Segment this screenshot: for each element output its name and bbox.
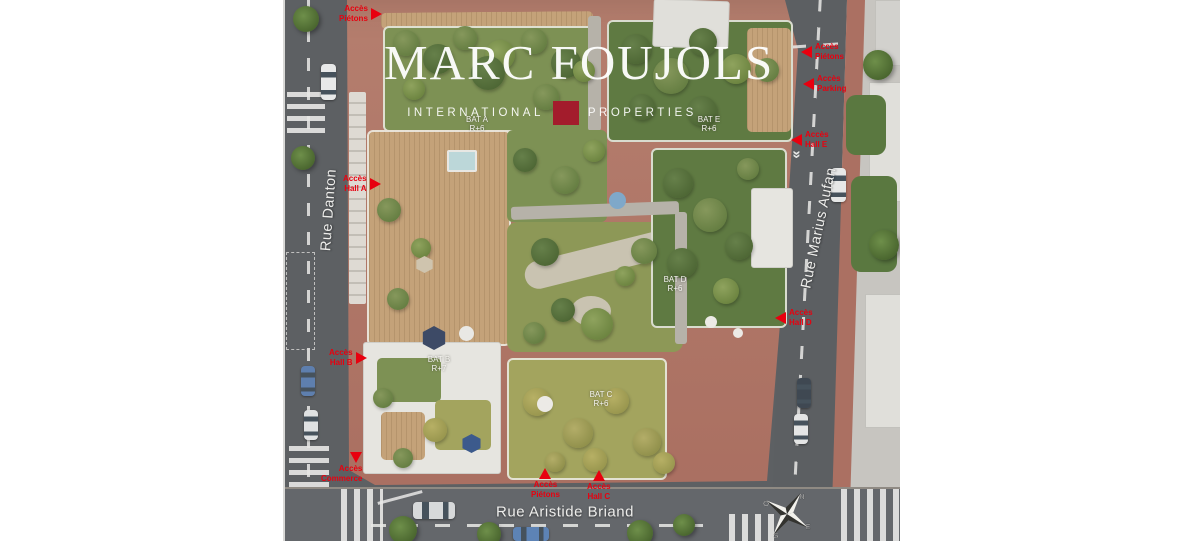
building-label-bat-b: BAT B R+7: [428, 355, 450, 373]
access-label-pietons-right: AccèsPiétons: [801, 42, 844, 61]
access-line2: Piétons: [815, 52, 844, 62]
access-label-parking: AccèsParking: [803, 74, 846, 93]
bush: [393, 448, 413, 468]
spa-pool: [609, 192, 626, 209]
bush: [583, 448, 607, 472]
brand-watermark-title: MARC FOUJOLS: [384, 34, 768, 91]
arrow-up-icon: [593, 470, 605, 481]
bush: [693, 198, 727, 232]
building-floors: R+6: [466, 124, 488, 133]
arrow-right-icon: [356, 352, 367, 364]
arrow-down-icon: [350, 452, 362, 463]
tree: [673, 514, 695, 536]
access-label-hall-d: AccèsHall D: [775, 308, 813, 327]
access-label-hall-b: AccèsHall B: [329, 348, 367, 367]
table: [733, 328, 743, 338]
access-label-commerce: AccèsCommerce: [321, 452, 362, 483]
building-name: BAT D: [664, 275, 687, 284]
page: »: [0, 0, 1180, 541]
car: [301, 366, 315, 396]
compass-rose-icon: N O E S: [757, 484, 817, 541]
tree: [389, 516, 417, 541]
bush: [373, 388, 393, 408]
access-line2: Hall D: [789, 318, 812, 328]
bush: [581, 308, 613, 340]
access-line2: Commerce: [321, 474, 362, 484]
bush: [387, 288, 409, 310]
arrow-left-icon: [801, 46, 812, 58]
compass-west: O: [763, 499, 769, 508]
building-name: BAT B: [428, 355, 450, 364]
access-line2: Hall B: [330, 358, 353, 368]
access-line1: Accès: [805, 130, 829, 140]
brand-subtitle-left: INTERNATIONAL: [407, 107, 544, 119]
bush: [411, 238, 431, 258]
bush: [583, 140, 605, 162]
access-line1: Accès: [789, 308, 813, 318]
access-line1: Accès: [321, 464, 362, 474]
tree: [291, 146, 315, 170]
access-line1: Accès: [344, 4, 368, 14]
access-line1: Accès: [815, 42, 839, 52]
access-line2: Hall A: [344, 184, 366, 194]
bush: [551, 166, 579, 194]
access-label-hall-e: AccèsHall E: [791, 130, 829, 149]
car: [513, 527, 549, 541]
car: [794, 414, 808, 444]
bush: [523, 322, 545, 344]
building-label-bat-c: BAT C R+6: [590, 390, 613, 408]
street-label-rue-aristide-briand: Rue Aristide Briand: [496, 504, 634, 521]
bush: [513, 148, 537, 172]
aerial-site-plan: »: [283, 0, 900, 541]
bush: [725, 232, 753, 260]
bush: [423, 418, 447, 442]
arrow-up-icon: [539, 468, 551, 479]
building-floors: R+6: [590, 399, 613, 408]
access-line1: Accès: [534, 480, 558, 490]
brand-subtitle-right: PROPERTIES: [588, 107, 697, 119]
bush: [737, 158, 759, 180]
table: [705, 316, 717, 328]
building-floors: R+7: [428, 364, 450, 373]
car: [304, 410, 318, 440]
bush: [531, 238, 559, 266]
table: [459, 326, 474, 341]
tree: [869, 230, 899, 260]
bush: [663, 168, 693, 198]
access-line1: Accès: [329, 348, 353, 358]
access-line2: Hall C: [587, 492, 610, 502]
bush: [563, 418, 593, 448]
car: [321, 64, 336, 100]
arrow-left-icon: [791, 134, 802, 146]
building-label-bat-d: BAT D R+6: [664, 275, 687, 293]
access-line1: Accès: [817, 74, 841, 84]
tree: [627, 520, 653, 541]
car: [797, 378, 811, 408]
tree: [477, 522, 501, 541]
building-floors: R+6: [664, 284, 687, 293]
bush: [667, 248, 697, 278]
building-floors: R+6: [698, 124, 720, 133]
bush: [615, 266, 635, 286]
bush: [551, 298, 575, 322]
bush: [633, 428, 661, 456]
access-line2: Piétons: [531, 490, 560, 500]
access-label-hall-a: AccèsHall A: [343, 174, 381, 193]
compass-east: E: [805, 522, 810, 531]
brand-red-square-icon: [553, 101, 579, 125]
access-line2: Hall E: [805, 140, 827, 150]
bush: [631, 238, 657, 264]
compass-north: N: [799, 492, 804, 501]
access-line2: Piétons: [339, 14, 368, 24]
access-label-pietons-bottom: AccèsPiétons: [531, 468, 560, 499]
brand-watermark-subtitle: INTERNATIONAL PROPERTIES: [397, 101, 707, 125]
access-label-hall-c: AccèsHall C: [587, 470, 611, 501]
arrow-left-icon: [803, 78, 814, 90]
access-line1: Accès: [343, 174, 367, 184]
table: [537, 396, 553, 412]
access-line2: Parking: [817, 84, 846, 94]
car: [413, 502, 455, 519]
arrow-right-icon: [370, 178, 381, 190]
bush: [377, 198, 401, 222]
compass-south: S: [773, 531, 778, 540]
arrow-left-icon: [775, 312, 786, 324]
bush: [713, 278, 739, 304]
arrow-right-icon: [371, 8, 382, 20]
tree: [293, 6, 319, 32]
bush: [653, 452, 675, 474]
tree: [863, 50, 893, 80]
access-label-pietons-top-left: AccèsPiétons: [339, 4, 382, 23]
building-name: BAT C: [590, 390, 613, 399]
access-line1: Accès: [587, 482, 611, 492]
